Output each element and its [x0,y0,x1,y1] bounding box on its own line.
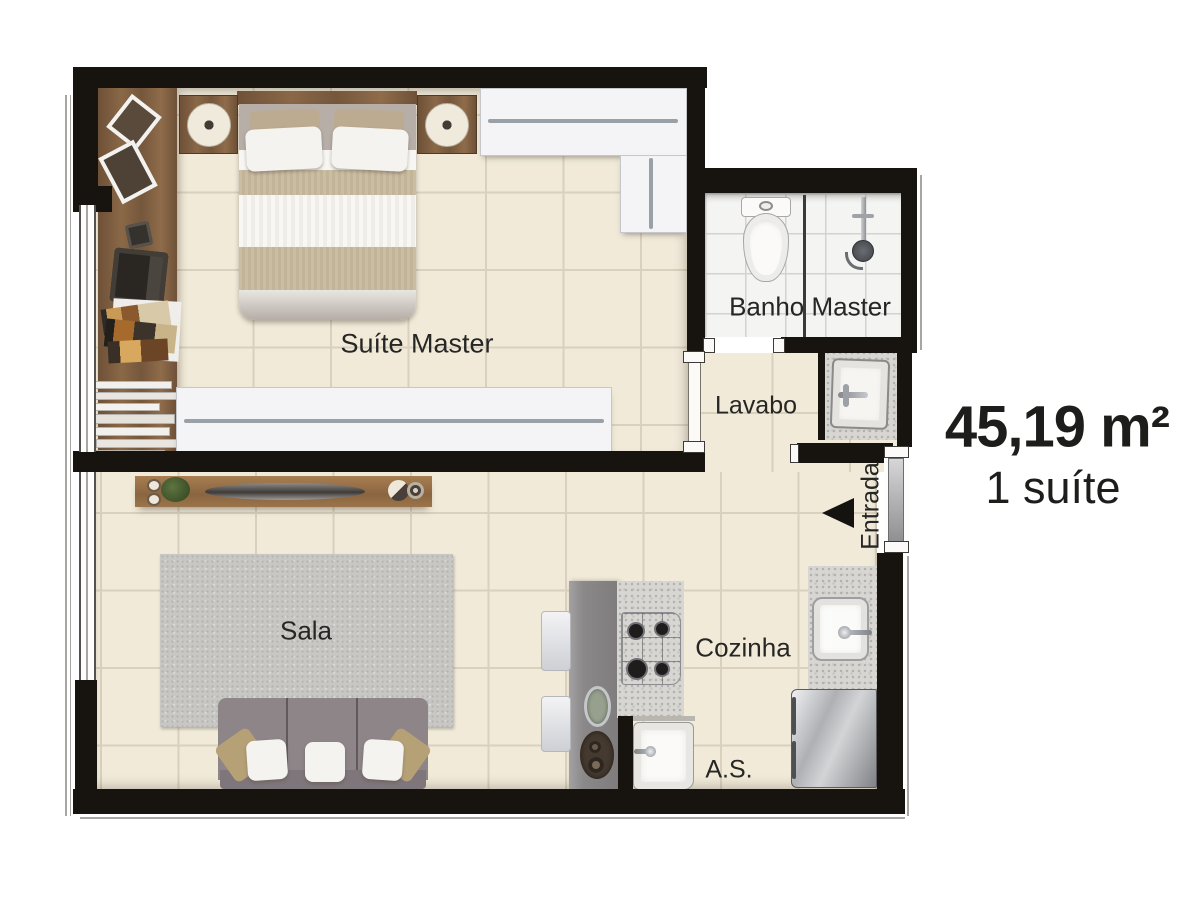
suite-count: 1 suíte [985,462,1120,514]
door-jamb [790,444,799,463]
faucet [645,746,656,757]
sofa-pillow [246,739,289,782]
entrance-door [888,458,904,543]
living-window [79,472,96,680]
bed-runner [239,247,416,290]
room-label-servico: A.S. [705,756,752,785]
stool [541,696,571,752]
exterior-trim [70,95,71,816]
bed-pillow [245,126,323,172]
shelf-books [90,427,170,436]
exterior-trim [920,175,922,350]
wardrobe-rod [488,119,678,123]
exterior-trim [80,817,905,819]
wardrobe-rod [649,158,653,229]
suite-window [79,205,96,452]
decor-tray-item [588,757,604,773]
room-label-suite: Suíte Master [340,329,493,360]
decor-bowl [388,480,409,501]
bed-duvet [239,195,416,247]
wall-kitchen-right [877,553,903,790]
exterior-trim [907,556,909,816]
decor-bowl [407,482,424,499]
fridge [791,689,877,788]
clothes-rack-rod [184,419,604,423]
wardrobe-side [620,155,687,233]
door-jamb [773,338,785,353]
shelf-books [95,392,178,400]
wall-bottom [73,789,905,814]
wall-top [73,67,707,88]
entrance-arrow-icon [822,498,854,528]
burner [626,658,648,680]
wall-left-lower [75,680,97,791]
wall-lavabo-right [897,353,912,447]
sofa-pillow [305,742,345,782]
exterior-trim [65,95,67,816]
stool [541,611,571,671]
wall-suite-sala [73,451,705,472]
fridge-handle [792,697,796,735]
bed-headboard [237,91,417,105]
phone [125,221,153,249]
plant [161,477,190,502]
wall-lavabo-bottom [797,443,893,463]
room-label-sala: Sala [280,616,332,647]
decor-jar [147,479,161,492]
decor-jar [147,493,161,506]
room-label-banho: Banho Master [729,292,891,323]
shelf-books [96,439,178,448]
door-jamb [683,441,705,453]
lamp [187,103,231,147]
bed-runner [239,170,416,195]
wall-bathroom-right [901,168,917,353]
suite-door-opening [688,352,701,452]
shower-handle [852,214,874,218]
burner [627,622,645,640]
faucet [838,626,851,639]
shelf-books [90,381,172,389]
island-sink [584,686,611,727]
door-jamb [683,351,705,363]
laundry-counter-edge [633,716,695,721]
wall-suite-right [687,67,705,363]
fridge-handle [792,741,796,779]
toilet-flush-button [759,201,773,211]
wall-bathroom-bottom [781,337,917,353]
bed-pillow [331,126,409,172]
decor-platter [205,483,365,500]
wall-service-stub [618,716,633,790]
laundry-tub [633,722,694,790]
burner [654,621,670,637]
floor-plan: Suíte Master Banho Master Lavabo Entrada… [0,0,1200,900]
door-jamb [884,446,909,458]
faucet [843,384,849,407]
shelf-books [88,403,160,411]
sofa-pillow [362,739,405,782]
burner [654,661,670,677]
bed-foot [239,290,416,320]
room-label-lavabo: Lavabo [715,392,797,421]
wall-bathroom-top [687,168,915,193]
shelf-books [92,414,175,424]
decor-tray-item [589,741,601,753]
area-value: 45,19 m² [945,394,1169,461]
lamp [425,103,469,147]
magazine [107,338,168,363]
wall-left-upper [73,67,98,189]
room-label-entrada: Entrada [857,462,886,550]
room-label-cozinha: Cozinha [695,633,790,664]
door-jamb [884,541,909,553]
